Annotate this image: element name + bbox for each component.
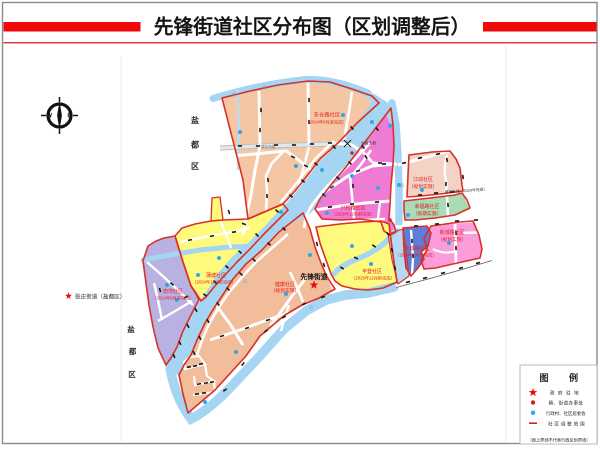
svg-text:新: 新: [232, 91, 236, 97]
svg-text:盐: 盐: [191, 115, 199, 125]
svg-text:区: 区: [128, 370, 136, 379]
svg-text:镇、街道办事处: 镇、街道办事处: [549, 400, 584, 407]
svg-text:健康社区: 健康社区: [275, 281, 295, 288]
svg-text:先锋街道: 先锋街道: [300, 272, 327, 281]
svg-text:（2025年12月前完成）: （2025年12月前完成）: [331, 211, 374, 218]
svg-text:（2024年12月前完成）: （2024年12月前完成）: [192, 279, 235, 286]
svg-text:河: 河: [243, 278, 247, 284]
svg-text:建军西路: 建军西路: [261, 144, 276, 149]
svg-text:河: 河: [309, 304, 313, 310]
svg-text:（按期实施）: （按期实施）: [413, 210, 442, 217]
svg-text:（2024年6月底完成）: （2024年6月底完成）: [306, 119, 347, 126]
svg-text:蒲塘社区: 蒲塘社区: [206, 272, 226, 279]
svg-text:例: 例: [569, 372, 578, 383]
svg-text:金陵大桥: 金陵大桥: [361, 141, 376, 146]
svg-text:（图上界线不代表行政区划界线）: （图上界线不代表行政区划界线）: [528, 437, 591, 444]
svg-text:都: 都: [190, 140, 199, 150]
svg-text:河: 河: [318, 198, 322, 204]
svg-text:兴桥路社区: 兴桥路社区: [340, 205, 365, 212]
svg-text:幸福路社区: 幸福路社区: [414, 203, 439, 210]
svg-text:东仓路社区: 东仓路社区: [314, 111, 341, 119]
svg-text:（规划实施）: （规划实施）: [438, 236, 467, 243]
svg-text:河: 河: [262, 84, 266, 90]
svg-text:（规划实施）: （规划实施）: [271, 287, 300, 294]
svg-text:新城路社区: 新城路社区: [439, 229, 464, 236]
svg-text:先锋街道社区分布图（区划调整后）: 先锋街道社区分布图（区划调整后）: [154, 16, 471, 39]
svg-text:区: 区: [191, 162, 199, 171]
svg-text:（规划实施）: （规划实施）: [409, 183, 438, 190]
svg-text:丰登社区: 丰登社区: [362, 268, 382, 275]
svg-text:政府驻地: 政府驻地: [550, 390, 582, 397]
svg-text:图: 图: [539, 373, 548, 383]
svg-text:都: 都: [128, 346, 137, 356]
svg-text:社区调整范围: 社区调整范围: [548, 421, 586, 428]
svg-text:场: 场: [324, 191, 328, 197]
svg-text:河: 河: [400, 182, 404, 188]
svg-text:唐湾社区: 唐湾社区: [163, 288, 183, 295]
svg-text:（2025年12月前完成）: （2025年12月前完成）: [351, 275, 394, 282]
svg-text:张庄街道（盐都区）: 张庄街道（盐都区）: [75, 293, 125, 301]
svg-text:串: 串: [330, 184, 334, 190]
svg-text:江动社区: 江动社区: [413, 176, 433, 183]
svg-text:（2024年6月前完成）: （2024年6月前完成）: [396, 252, 437, 259]
svg-text:北城路社区: 北城路社区: [404, 245, 429, 252]
svg-text:（2024年6月前完成）: （2024年6月前完成）: [153, 295, 194, 302]
svg-text:行政村、社区居委会: 行政村、社区居委会: [546, 410, 586, 417]
svg-text:盐: 盐: [127, 324, 135, 334]
